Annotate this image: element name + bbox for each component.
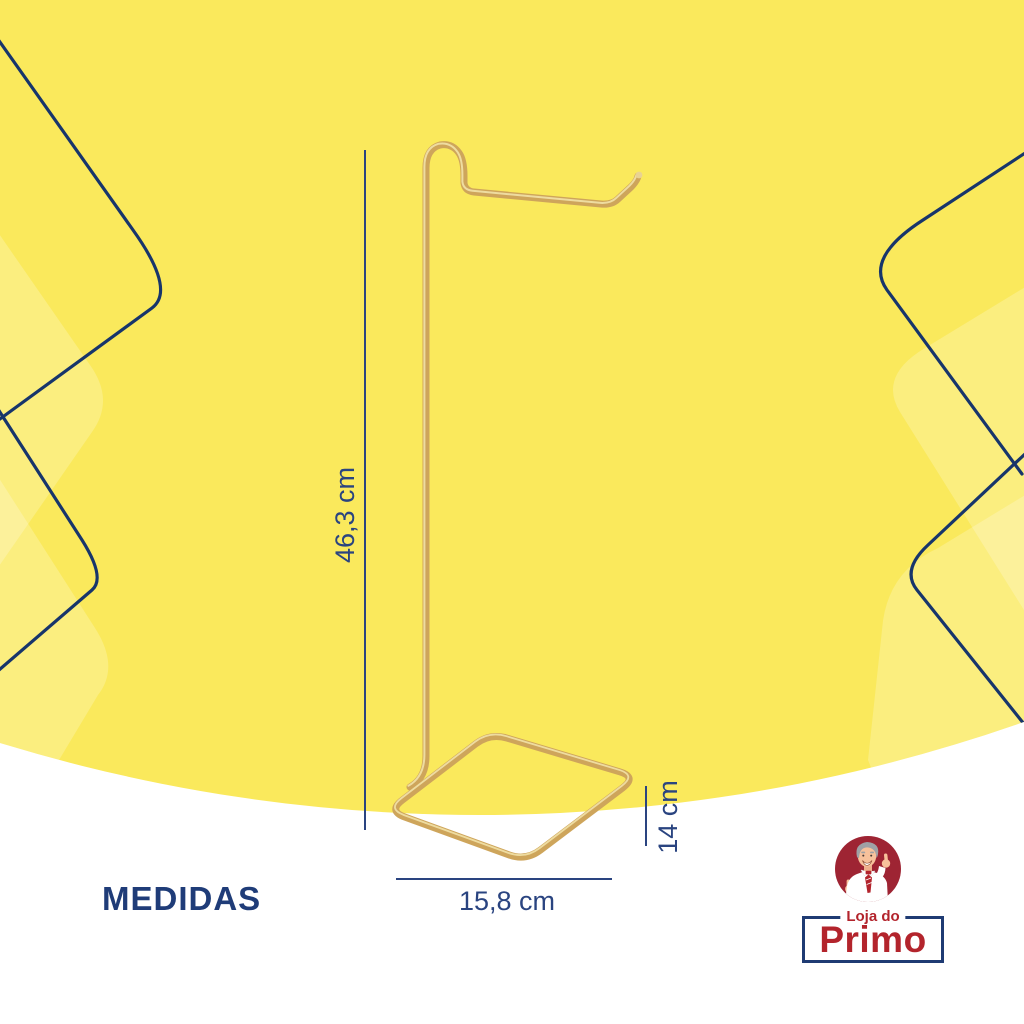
stand-pole-and-hook: [410, 145, 638, 787]
height-dimension-label: 46,3 cm: [330, 450, 360, 580]
width-dimension-label: 15,8 cm: [427, 886, 587, 916]
base-depth-dimension-line: [645, 786, 647, 846]
brand-store-name: Primo: [805, 920, 941, 960]
brand-mascot: [835, 836, 901, 902]
height-dimension-line: [364, 150, 366, 830]
section-title: MEDIDAS: [102, 880, 261, 918]
brand-store-line: Loja do: [840, 908, 905, 925]
stand-pole-highlight: [408, 143, 636, 785]
stand-base-ring: [396, 737, 629, 858]
width-dimension-line: [396, 878, 612, 880]
product-measurement-banner: 46,3 cm 15,8 cm 14 cm MEDIDAS: [0, 0, 1024, 1024]
hook-tip: [636, 172, 643, 179]
brand-logo-box: Loja do Primo: [802, 916, 944, 963]
stand-base-highlight: [395, 735, 628, 856]
base-depth-dimension-label: 14 cm: [653, 762, 683, 872]
